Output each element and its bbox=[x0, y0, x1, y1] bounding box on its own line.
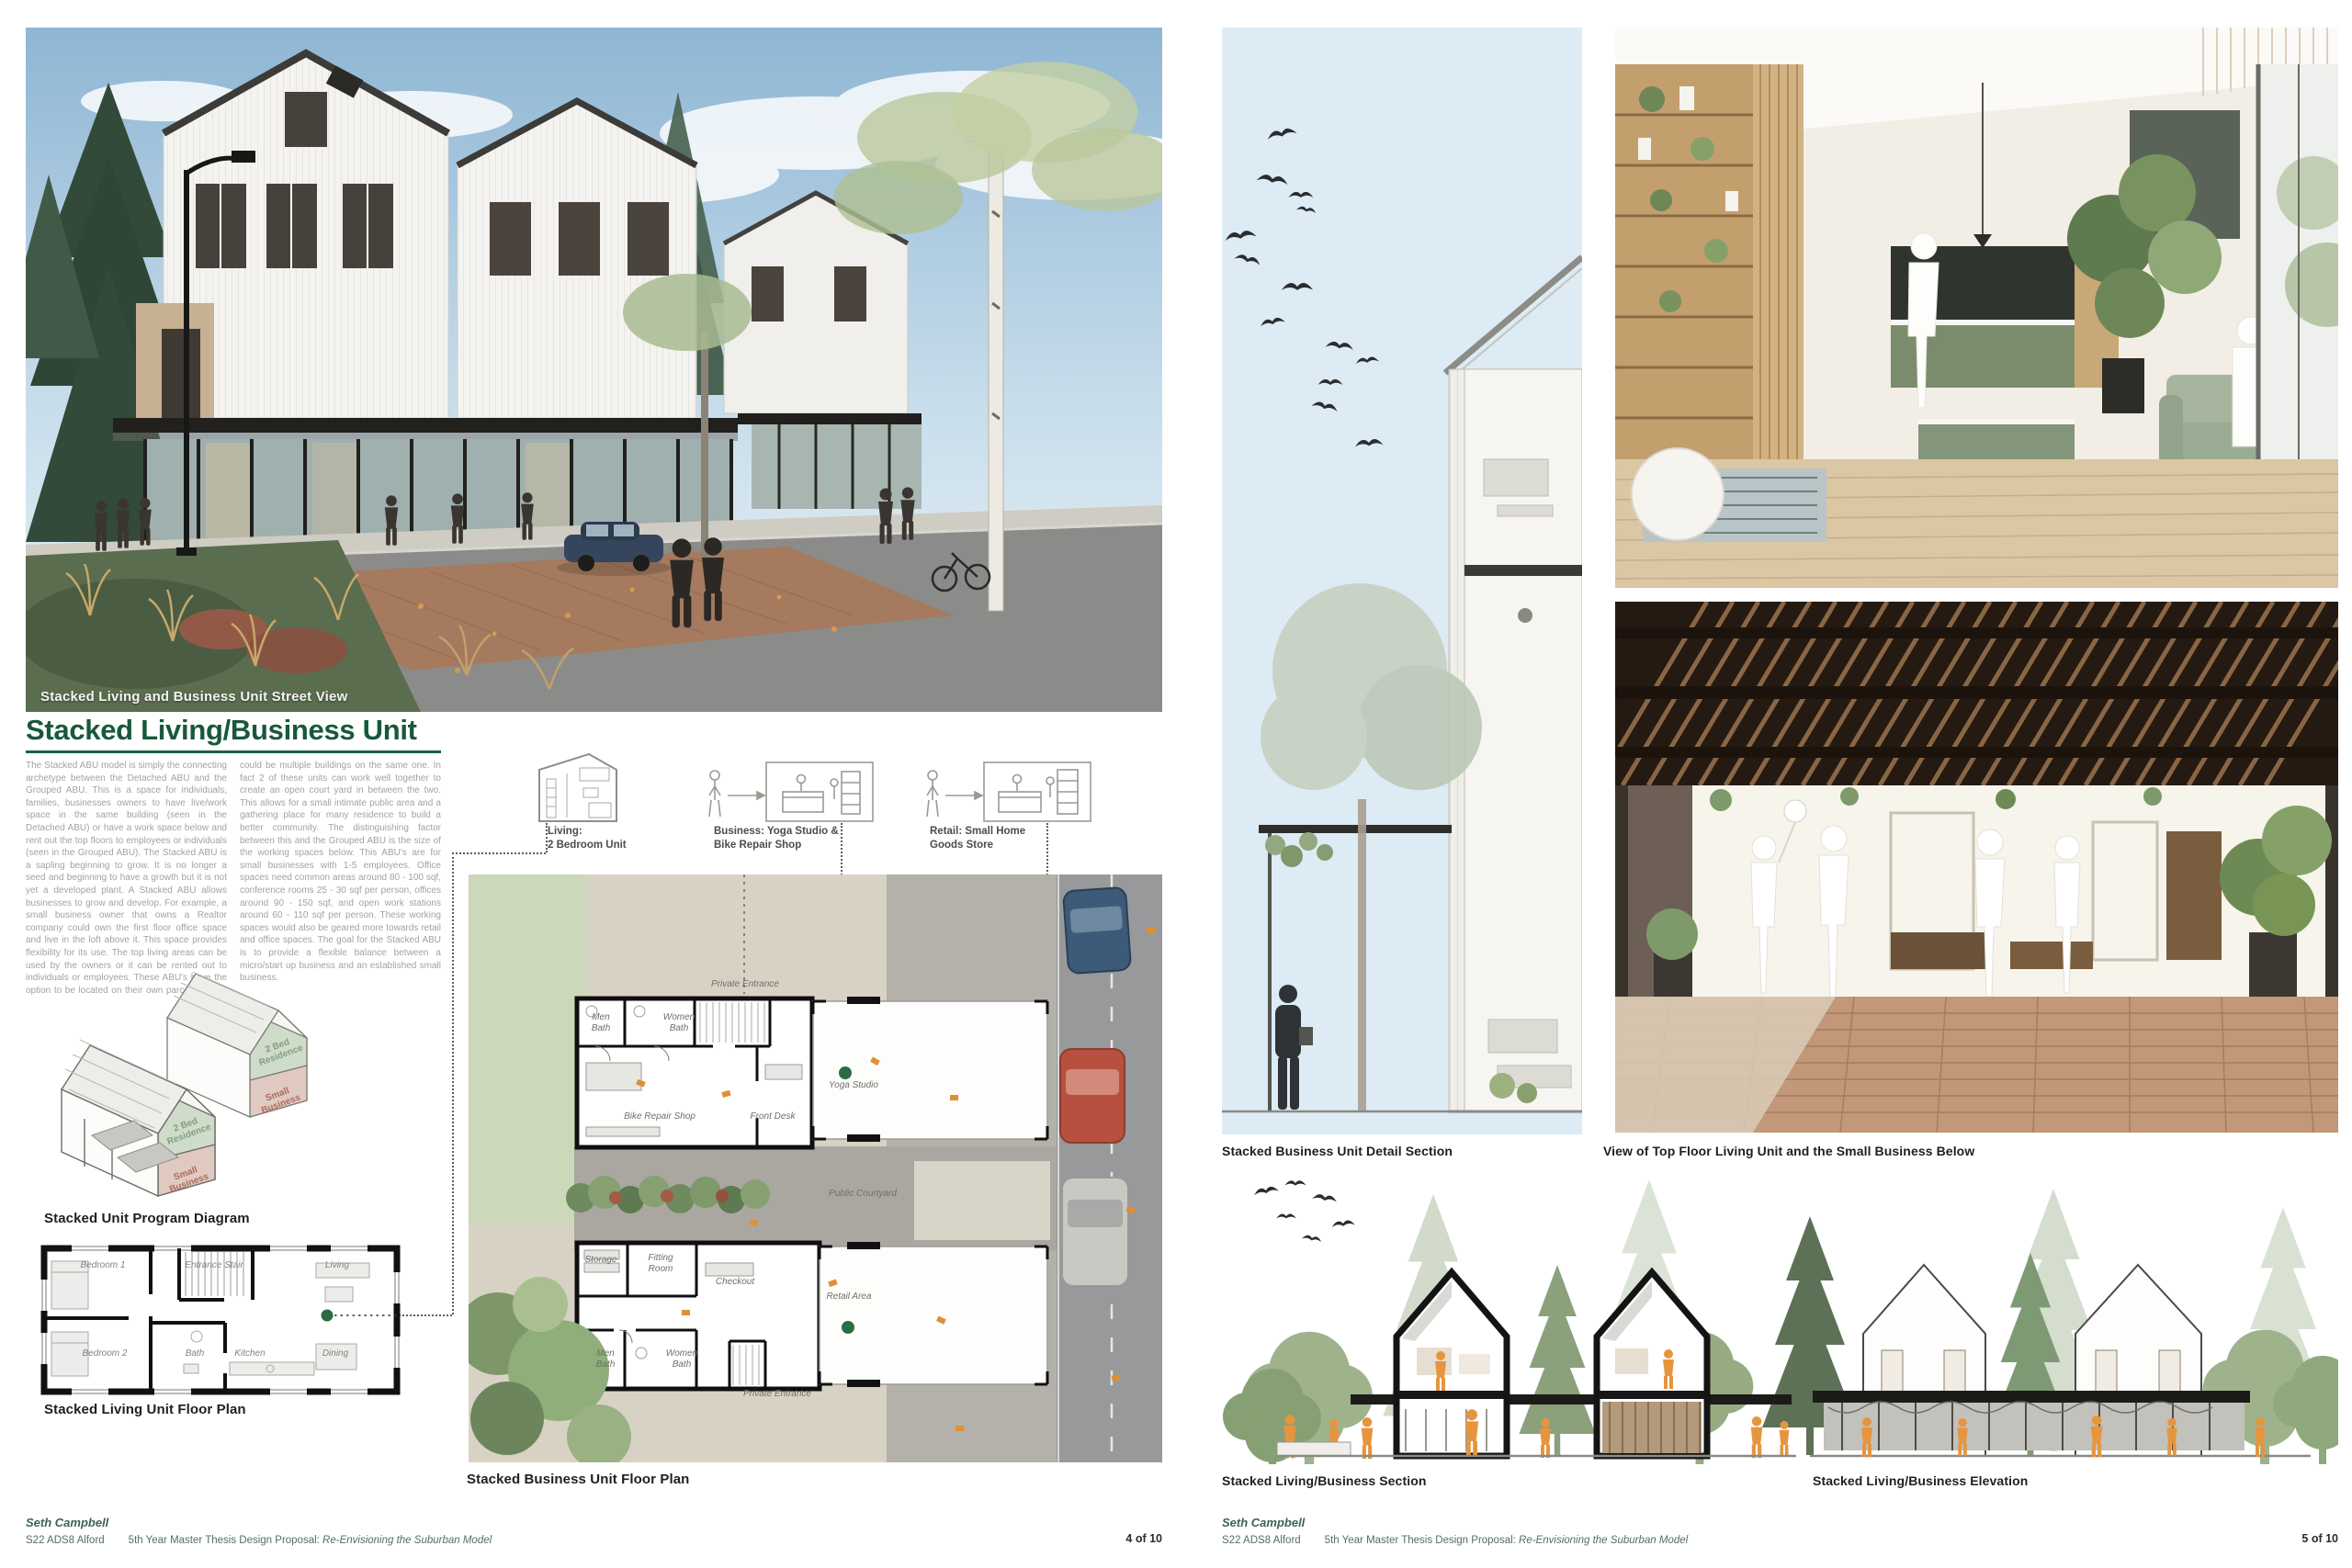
parked-cars bbox=[1060, 887, 1131, 1286]
section-elevation-band bbox=[1222, 1178, 2338, 1464]
section-shrub-2 bbox=[1517, 1083, 1537, 1103]
section-building bbox=[1445, 257, 1582, 1111]
label-yoga-studio: Yoga Studio bbox=[820, 1080, 888, 1091]
section-shrub bbox=[1489, 1073, 1515, 1099]
room-label-dining: Dining bbox=[316, 1348, 355, 1360]
label-private-entrance-top: Private Entrance bbox=[701, 979, 789, 990]
living-unit-diagram-label: Living: 2 Bedroom Unit bbox=[548, 825, 627, 852]
retail-label-line1: Retail: Small Home bbox=[930, 825, 1025, 839]
connector-living-1 bbox=[546, 823, 548, 852]
label-storage: Storage bbox=[577, 1255, 625, 1266]
label-checkout: Checkout bbox=[706, 1277, 764, 1288]
room-label-bath: Bath bbox=[180, 1348, 209, 1360]
footer-author-right: Seth Campbell bbox=[1222, 1516, 1305, 1529]
street-view-caption: Stacked Living and Business Unit Street … bbox=[40, 689, 347, 705]
label-private-entrance-bottom: Private Entrance bbox=[733, 1389, 821, 1400]
footer-line-left: S22 ADS8 Alford5th Year Master Thesis De… bbox=[26, 1535, 492, 1546]
wood-slat-canopy bbox=[1615, 602, 2338, 785]
retail-unit-diagram bbox=[923, 759, 1093, 825]
body-paragraph: The Stacked ABU model is simply the conn… bbox=[26, 760, 441, 997]
label-women-bath-a: Women Bath bbox=[654, 1012, 704, 1034]
section-house-2 bbox=[1597, 1272, 1707, 1456]
brick-floor bbox=[1615, 997, 2338, 1133]
footer-course-left: S22 ADS8 Alford bbox=[26, 1535, 105, 1546]
room-label-entrance-stair: Entrance Stair bbox=[184, 1260, 244, 1272]
footer-line-right: S22 ADS8 Alford5th Year Master Thesis De… bbox=[1222, 1535, 1688, 1546]
yoga-studio-dot bbox=[839, 1066, 852, 1079]
living-plan-node-dot bbox=[322, 1310, 334, 1322]
business-plan-caption: Stacked Business Unit Floor Plan bbox=[467, 1472, 689, 1487]
sphere-chair bbox=[1632, 448, 1724, 540]
label-fitting-room: Fitting Room bbox=[638, 1253, 684, 1275]
business-unit-diagram-label: Business: Yoga Studio & Bike Repair Shop bbox=[714, 825, 839, 852]
business-unit-diagram bbox=[706, 759, 876, 825]
room-label-kitchen: Kitchen bbox=[230, 1348, 270, 1360]
living-label-line1: Living: bbox=[548, 825, 627, 839]
elevation-storefront bbox=[1810, 1391, 2311, 1456]
retail-unit-diagram-label: Retail: Small Home Goods Store bbox=[930, 825, 1025, 852]
room-label-bedroom2: Bedroom 2 bbox=[76, 1348, 133, 1360]
page-title: Stacked Living/Business Unit bbox=[26, 714, 417, 747]
living-unit-diagram bbox=[536, 751, 633, 825]
detail-section-caption: Stacked Business Unit Detail Section bbox=[1222, 1144, 1453, 1158]
connector-living-3 bbox=[452, 852, 454, 1314]
label-men-bath-b: Men Bath bbox=[588, 1348, 623, 1371]
section-platform bbox=[1277, 1442, 1351, 1456]
top-view-caption: View of Top Floor Living Unit and the Sm… bbox=[1603, 1144, 1974, 1158]
room-label-bedroom1: Bedroom 1 bbox=[75, 1260, 130, 1272]
label-men-bath-a: Men Bath bbox=[584, 1012, 617, 1034]
footer-proposal-title-right: Re-Envisioning the Suburban Model bbox=[1519, 1535, 1688, 1546]
title-underline bbox=[26, 750, 441, 753]
label-bike-repair-shop: Bike Repair Shop bbox=[619, 1111, 700, 1122]
business-label-line2: Bike Repair Shop bbox=[714, 839, 839, 852]
band-elevation-caption: Stacked Living/Business Elevation bbox=[1813, 1473, 2028, 1488]
living-plan-caption: Stacked Living Unit Floor Plan bbox=[44, 1402, 246, 1417]
page-number-left: 4 of 10 bbox=[978, 1532, 1162, 1545]
label-women-bath-b: Women Bath bbox=[656, 1348, 707, 1371]
label-front-desk: Front Desk bbox=[741, 1111, 805, 1122]
band-birds bbox=[1253, 1180, 1355, 1242]
street-view-render: Stacked Living and Business Unit Street … bbox=[26, 28, 1162, 712]
window-wall bbox=[2258, 64, 2338, 468]
label-public-courtyard: Public Courtyard bbox=[810, 1189, 915, 1200]
band-section-caption: Stacked Living/Business Section bbox=[1222, 1473, 1427, 1488]
top-floor-view-render bbox=[1615, 602, 2338, 1133]
retail-label-line2: Goods Store bbox=[930, 839, 1025, 852]
footer-author-left: Seth Campbell bbox=[26, 1516, 108, 1529]
page-number-right: 5 of 10 bbox=[2154, 1532, 2338, 1545]
room-label-living: Living bbox=[318, 1260, 356, 1272]
courtyard-light-square bbox=[914, 1161, 1050, 1240]
wood-shelving bbox=[1615, 64, 1804, 459]
footer-proposal-title-left: Re-Envisioning the Suburban Model bbox=[322, 1535, 492, 1546]
retail-area-dot bbox=[842, 1321, 854, 1334]
detail-section-drawing bbox=[1222, 28, 1582, 1134]
interior-kitchen-render bbox=[1615, 28, 2338, 588]
deck-b bbox=[820, 1242, 1047, 1387]
program-diagram-caption: Stacked Unit Program Diagram bbox=[44, 1211, 250, 1226]
footer-proposal-prefix-left: 5th Year Master Thesis Design Proposal: bbox=[129, 1535, 322, 1546]
site-grass bbox=[469, 874, 586, 1225]
footer-course-right: S22 ADS8 Alford bbox=[1222, 1535, 1301, 1546]
footer-proposal-prefix-right: 5th Year Master Thesis Design Proposal: bbox=[1325, 1535, 1519, 1546]
street-view-drawing bbox=[26, 28, 1162, 712]
presentation-spread: Stacked Living and Business Unit Street … bbox=[0, 0, 2352, 1568]
connector-living-2 bbox=[452, 852, 546, 854]
living-label-line2: 2 Bedroom Unit bbox=[548, 839, 627, 852]
business-label-line1: Business: Yoga Studio & bbox=[714, 825, 839, 839]
business-unit-site-plan bbox=[469, 874, 1162, 1462]
label-retail-area: Retail Area bbox=[818, 1292, 880, 1303]
